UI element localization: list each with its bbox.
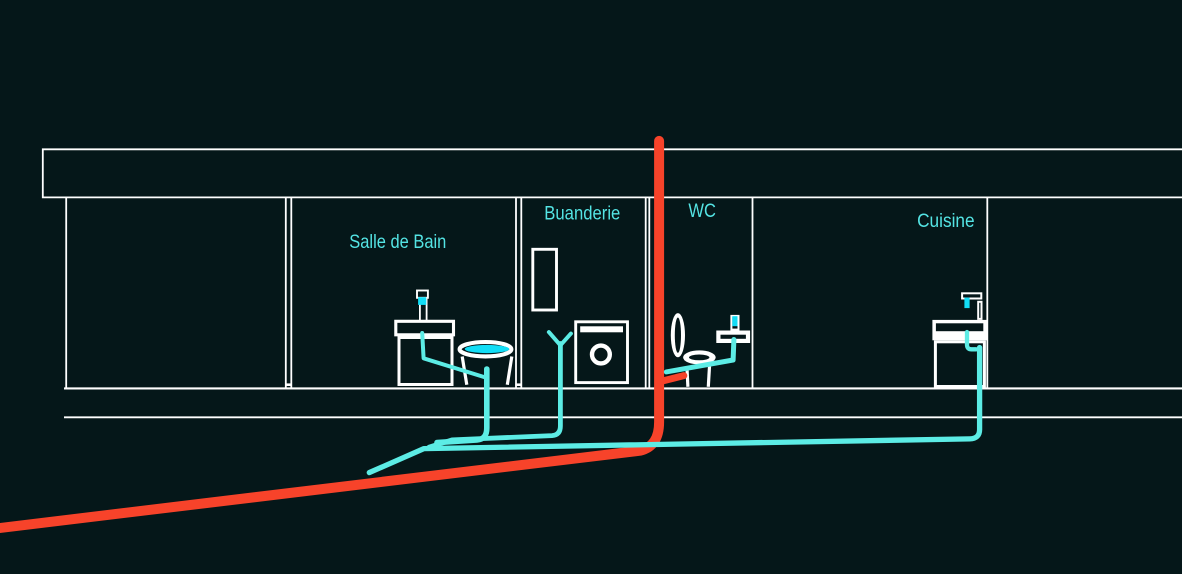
svg-text:Salle de Bain: Salle de Bain xyxy=(349,231,446,253)
svg-text:WC: WC xyxy=(688,200,716,222)
svg-text:Cuisine: Cuisine xyxy=(917,210,975,232)
svg-text:Buanderie: Buanderie xyxy=(544,202,620,224)
